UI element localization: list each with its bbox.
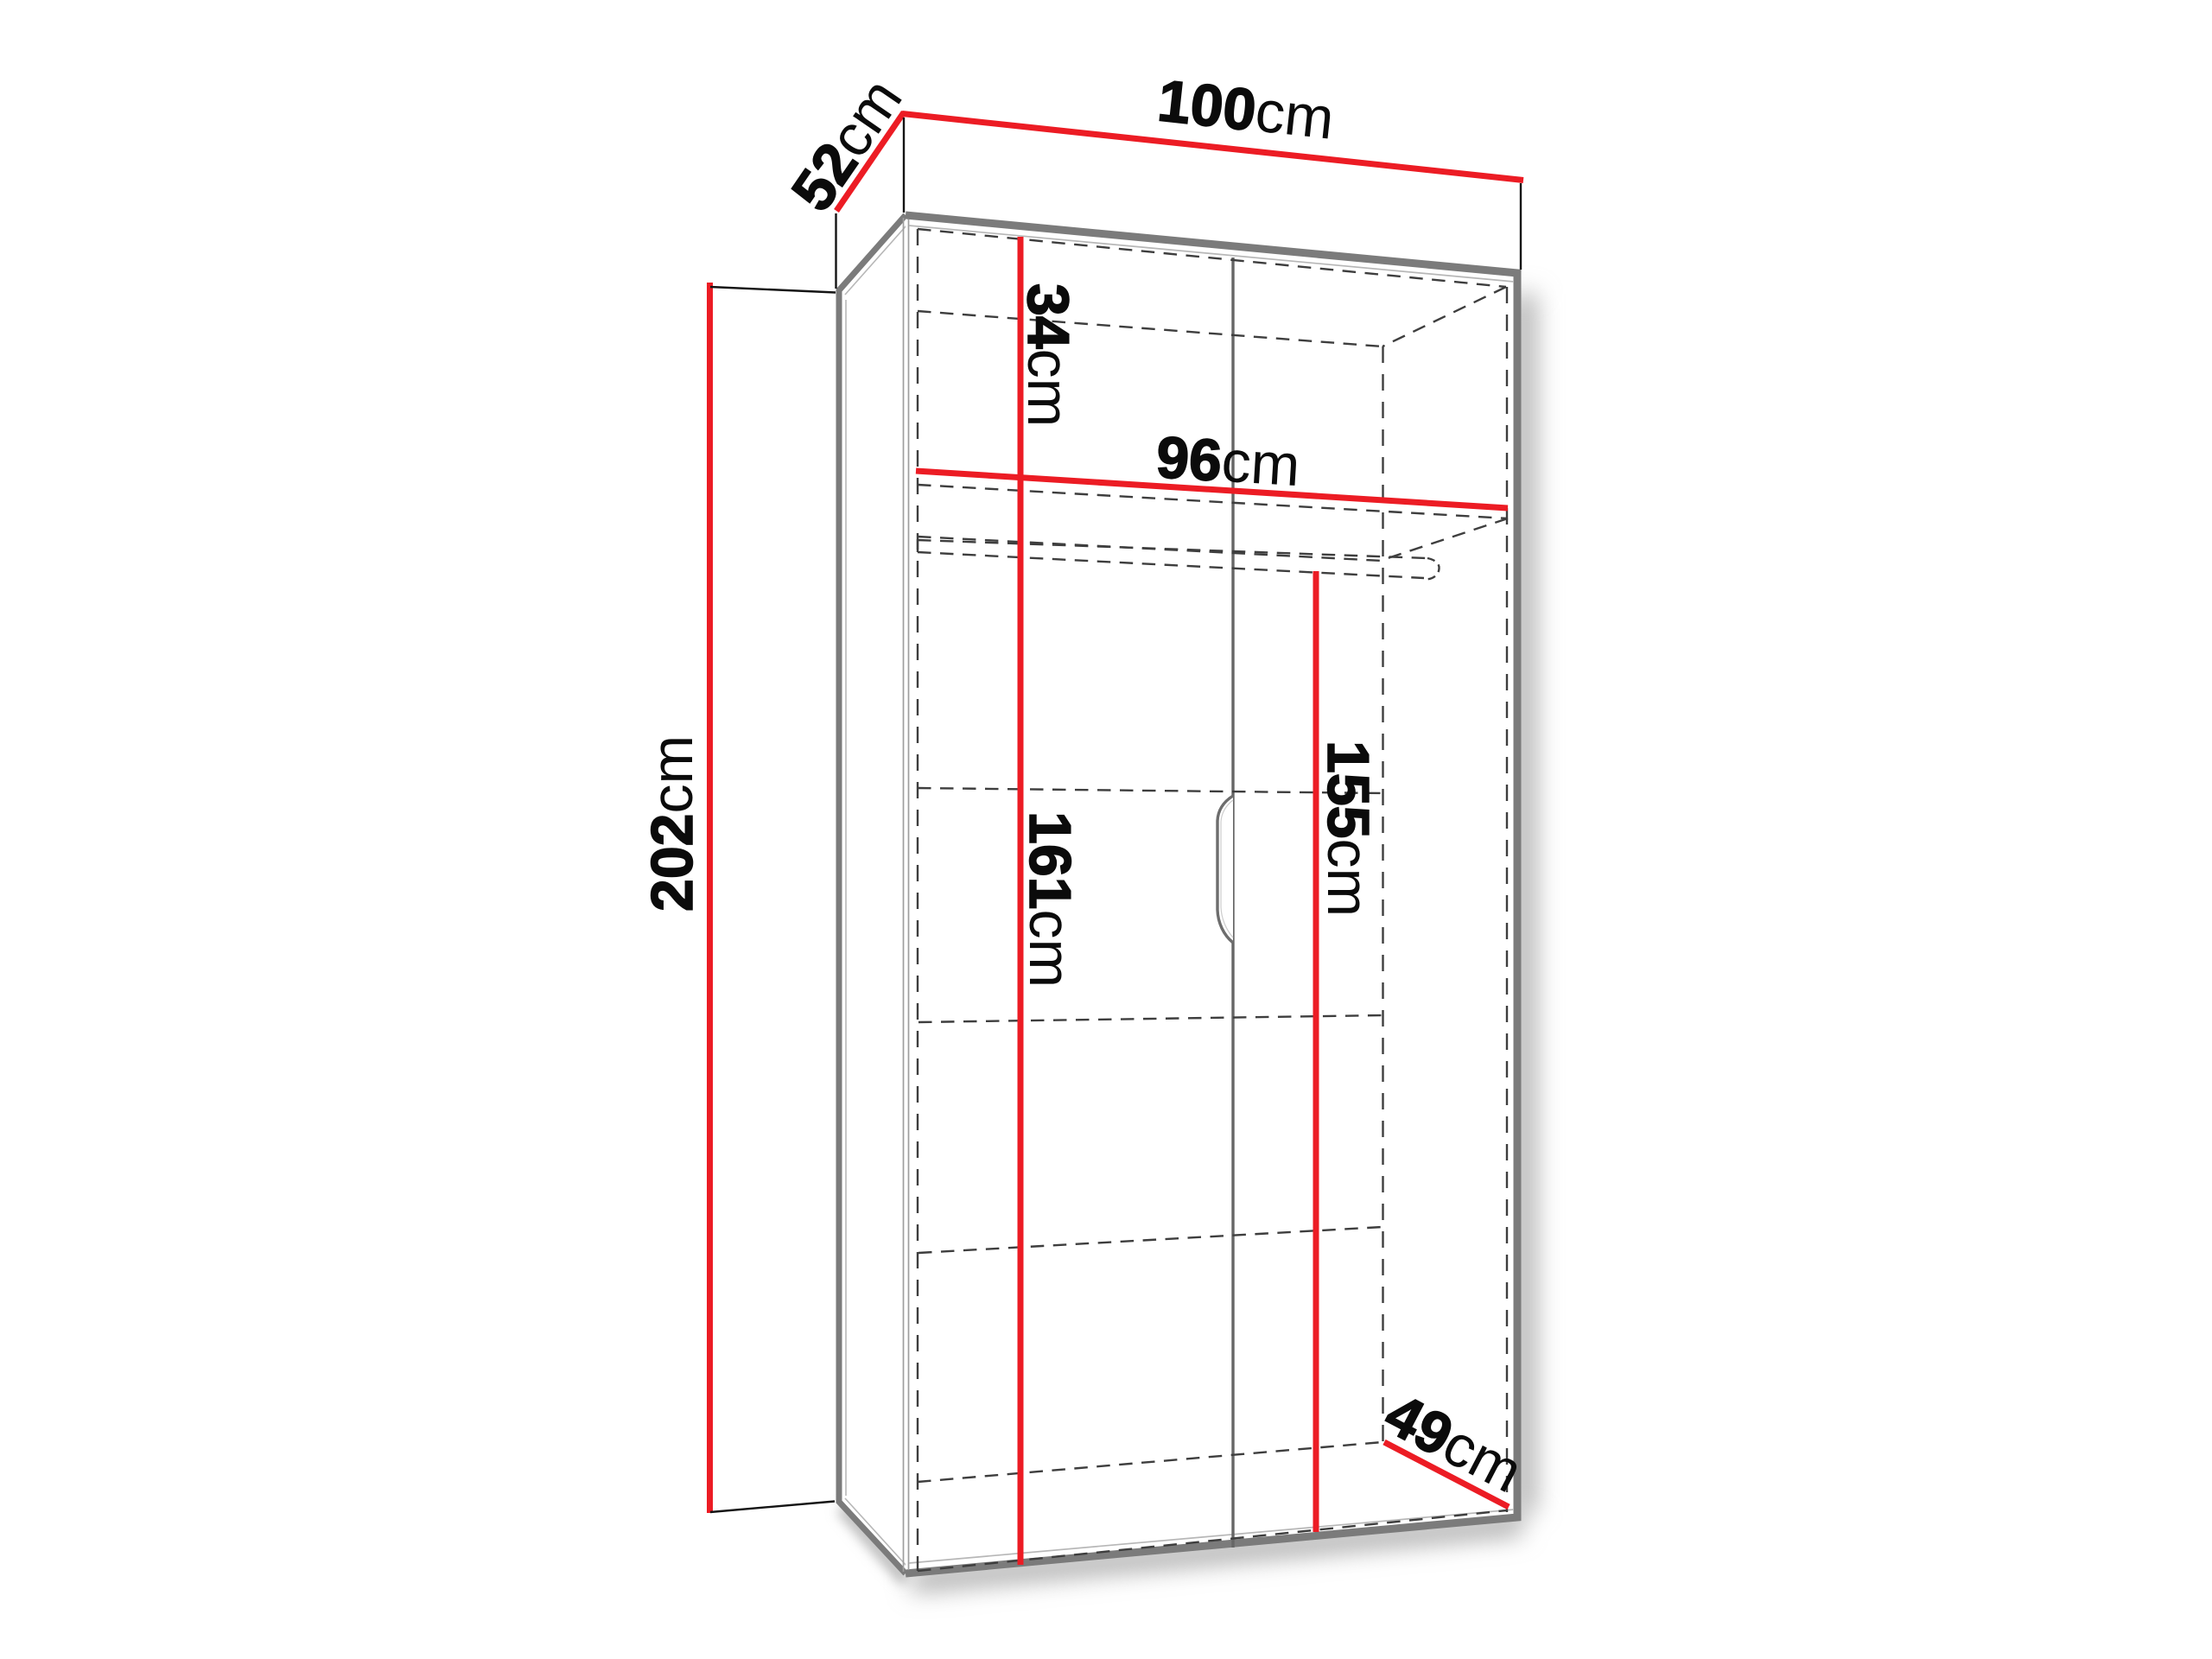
svg-text:161cm: 161cm (1017, 811, 1083, 988)
svg-text:34cm: 34cm (1015, 283, 1081, 427)
svg-text:155cm: 155cm (1315, 741, 1381, 917)
svg-text:202cm: 202cm (639, 735, 705, 912)
svg-text:96cm: 96cm (1154, 424, 1302, 499)
